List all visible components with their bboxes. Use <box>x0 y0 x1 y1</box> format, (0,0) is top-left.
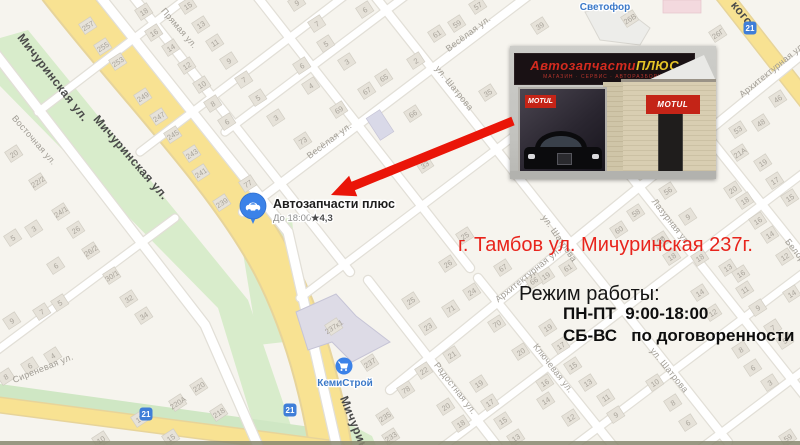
street-label: Весёлая ул. <box>305 121 354 161</box>
sign-title-red: Автозапчасти <box>530 58 636 73</box>
car-image <box>524 131 602 169</box>
poi-kemistroy-label: КемиСтрой <box>317 378 373 389</box>
street-label: Сиреневая ул. <box>11 351 75 384</box>
ground <box>510 171 716 179</box>
roof-edge <box>621 79 716 82</box>
place-rating: ★4,3 <box>311 213 333 224</box>
motul-banner: MOTUL <box>518 87 606 173</box>
roof <box>646 55 716 81</box>
road-number-text: 21 <box>286 406 295 415</box>
road-number-text: 21 <box>142 410 151 419</box>
map-edge <box>0 441 800 445</box>
door <box>658 107 683 176</box>
place-hours: До 18:00 <box>273 213 311 224</box>
street-label: ул. Шатрова <box>433 64 475 113</box>
road-number-text: 21 <box>746 24 755 33</box>
place-name[interactable]: Автозапчасти плюс <box>273 197 395 211</box>
motul-banner-logo: MOTUL <box>525 95 555 108</box>
map-screenshot: 257255253249247245243241239772022/224/11… <box>0 0 800 445</box>
building-number: 21А <box>732 146 748 161</box>
poi-svetofor-label[interactable]: Светофор <box>580 1 630 13</box>
motul-wall-sign: MOTUL <box>646 95 700 114</box>
storefront-photo: АвтозапчастиПЛЮС МАГАЗИН · СЕРВИС · АВТО… <box>510 46 716 179</box>
